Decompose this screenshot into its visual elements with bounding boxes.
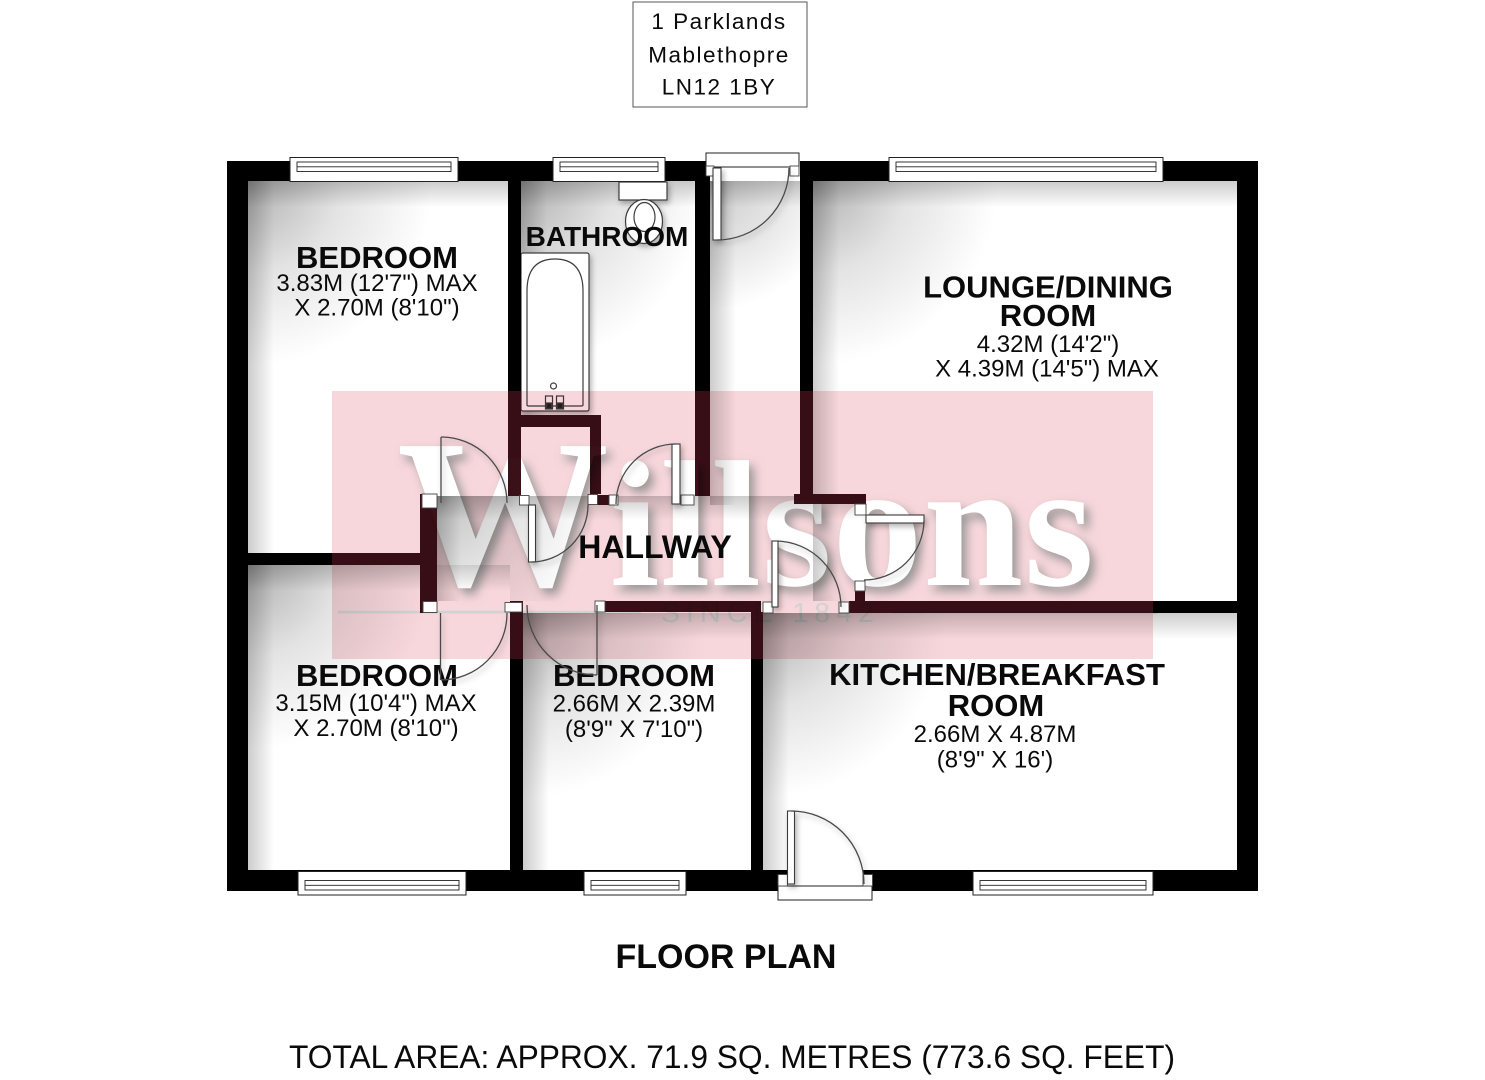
svg-text:X 2.70M (8'10"): X 2.70M (8'10") [293,715,458,742]
svg-text:FLOOR PLAN: FLOOR PLAN [616,938,837,976]
svg-text:(8'9" X 16'): (8'9" X 16') [937,747,1053,774]
svg-text:Mablethopre: Mablethopre [648,43,790,68]
svg-text:TOTAL AREA: APPROX. 71.9 SQ. M: TOTAL AREA: APPROX. 71.9 SQ. METRES (773… [289,1039,1175,1075]
svg-text:1 Parklands: 1 Parklands [651,9,786,34]
svg-text:X 4.39M (14'5") MAX: X 4.39M (14'5") MAX [935,356,1159,383]
svg-text:3.15M (10'4") MAX: 3.15M (10'4") MAX [275,690,476,717]
svg-text:X 2.70M (8'10"): X 2.70M (8'10") [294,295,459,322]
svg-text:ROOM: ROOM [1000,298,1096,333]
svg-text:ROOM: ROOM [948,688,1044,723]
svg-text:2.66M X 4.87M: 2.66M X 4.87M [914,721,1077,748]
svg-text:Willsons: Willsons [397,396,1094,631]
svg-text:4.32M (14'2"): 4.32M (14'2") [977,331,1120,358]
svg-text:KITCHEN/BREAKFAST: KITCHEN/BREAKFAST [829,657,1165,692]
svg-text:BATHROOM: BATHROOM [526,221,689,252]
svg-text:2.66M X 2.39M: 2.66M X 2.39M [553,691,716,718]
svg-text:(8'9" X 7'10"): (8'9" X 7'10") [565,716,703,743]
svg-text:BEDROOM: BEDROOM [296,658,458,693]
svg-text:LN12 1BY: LN12 1BY [662,75,777,100]
svg-text:BEDROOM: BEDROOM [553,658,715,693]
svg-text:3.83M (12'7") MAX: 3.83M (12'7") MAX [276,270,477,297]
